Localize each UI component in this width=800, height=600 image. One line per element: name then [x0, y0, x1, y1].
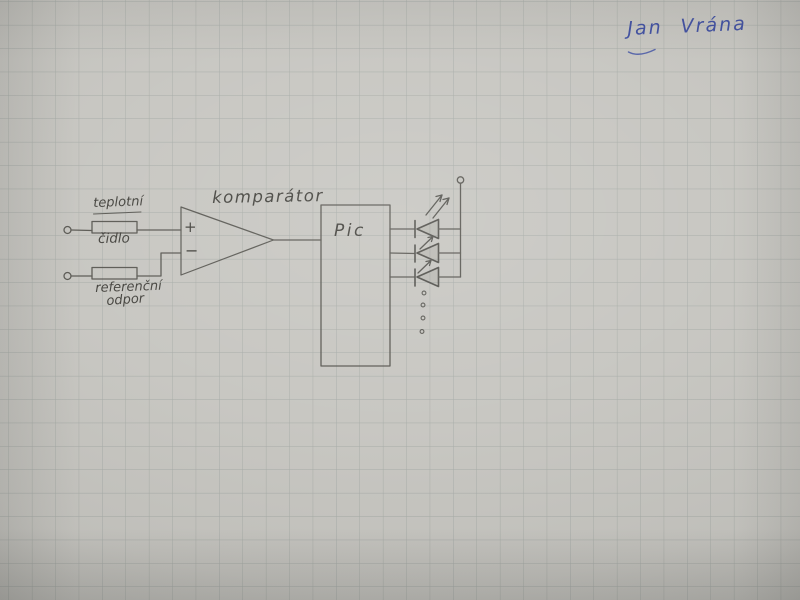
- led-column: [415, 220, 439, 287]
- photo-of-hand-drawn-schematic: teplotní čidlo referenční odpor komparát…: [0, 0, 800, 600]
- temp-sensor-label-line2: čidlo: [98, 232, 130, 246]
- comparator-plus-input-sign: +: [184, 220, 197, 235]
- signature: Jan Vrána: [627, 15, 747, 39]
- pic-label: Pic: [334, 223, 366, 240]
- reference-resistor-label-line2: odpor: [106, 292, 145, 308]
- wire: [390, 253, 415, 254]
- temp-sensor-label-line1: teplotní: [93, 195, 143, 210]
- comparator-minus-input-sign: −: [185, 243, 198, 259]
- comparator-label: komparátor: [212, 188, 324, 206]
- wire: [71, 230, 92, 231]
